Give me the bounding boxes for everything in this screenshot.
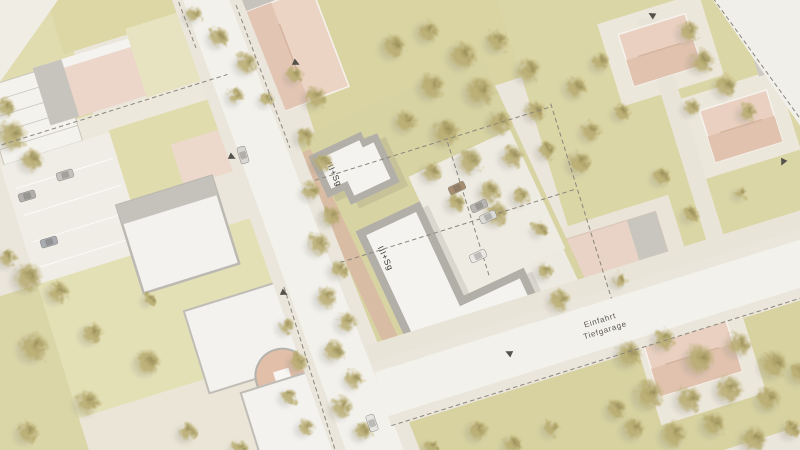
site-plan: III+Sg III+Sg Einfahrt Tiefgarage — [0, 0, 800, 450]
site-plan-page: III+Sg III+Sg Einfahrt Tiefgarage — [0, 0, 800, 450]
